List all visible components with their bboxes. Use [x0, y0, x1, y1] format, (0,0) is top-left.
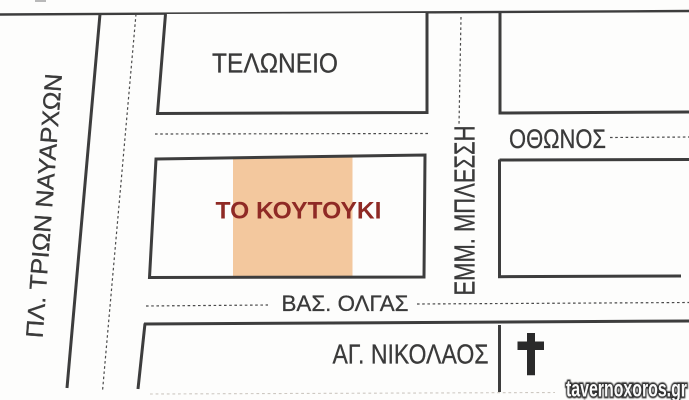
svg-text:ΕΜΜ. ΜΠΛΕΣΣΗ: ΕΜΜ. ΜΠΛΕΣΣΗ: [450, 126, 482, 296]
svg-text:ΤΟ ΚΟΥΤΟΥΚΙ: ΤΟ ΚΟΥΤΟΥΚΙ: [216, 198, 382, 225]
svg-text:ΤΕΛΩΝΕΙΟ: ΤΕΛΩΝΕΙΟ: [212, 48, 338, 79]
svg-text:ΑΓ. ΝΙΚΟΛΑΟΣ: ΑΓ. ΝΙΚΟΛΑΟΣ: [333, 339, 489, 370]
svg-text:ΒΑΣ. ΟΛΓΑΣ: ΒΑΣ. ΟΛΓΑΣ: [282, 291, 409, 316]
svg-text:ΟΘΩΝΟΣ: ΟΘΩΝΟΣ: [509, 124, 606, 154]
svg-text:tavernoxoros.gr: tavernoxoros.gr: [566, 376, 687, 400]
